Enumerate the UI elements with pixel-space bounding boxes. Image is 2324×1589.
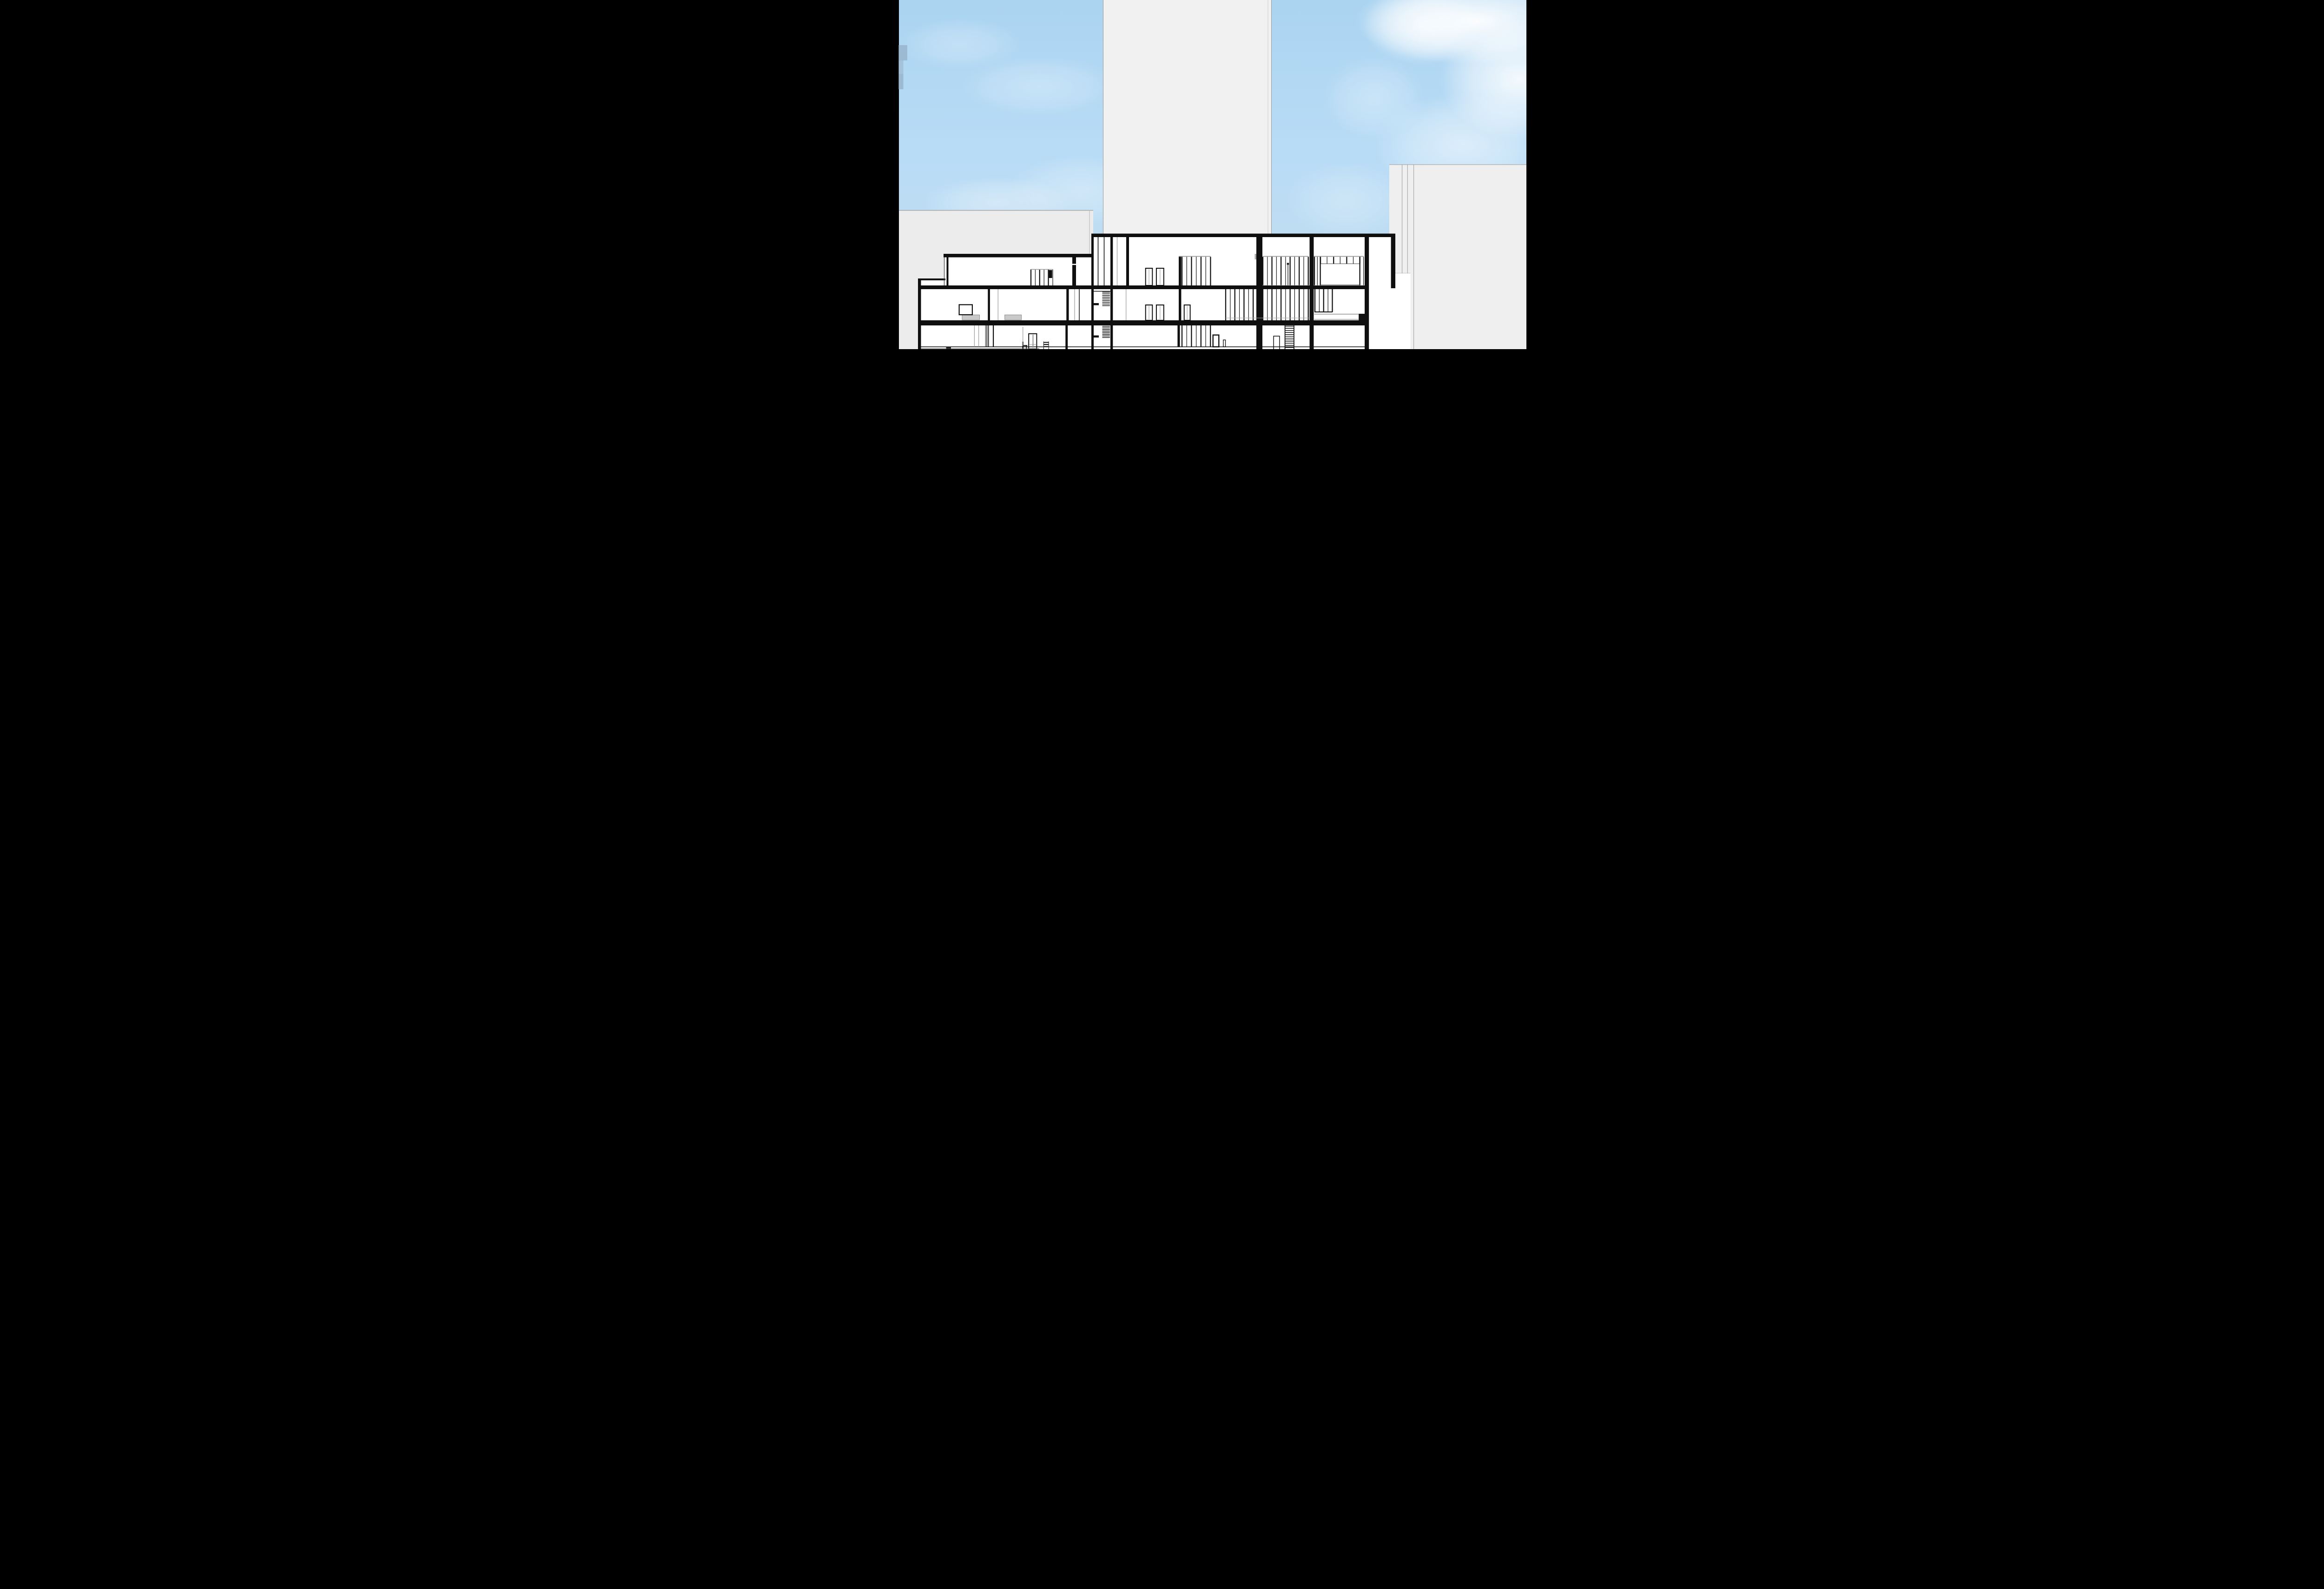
left-facade-line: [947, 258, 949, 286]
architectural-section-scene: [798, 0, 1526, 487]
upper-partition-wall: [1126, 237, 1129, 285]
low-cabinet-a: [962, 315, 980, 320]
cloud: [900, 19, 1021, 70]
mid-floor-slab: [918, 285, 1369, 289]
ground-layer: [798, 349, 1526, 487]
left-annex-interior: [918, 280, 944, 349]
right-parapet-wall: [1391, 234, 1395, 289]
stair-core-wall-left: [1091, 237, 1094, 349]
left-wing-roof-slab: [944, 254, 1091, 258]
background-building-left: [899, 210, 1093, 258]
background-tower: [1103, 0, 1272, 235]
left-ground-partition-a: [988, 325, 989, 347]
drawing-canvas: [798, 0, 1526, 487]
left-exterior-wall: [918, 278, 921, 349]
cloud: [1323, 56, 1425, 139]
sky-edge-mark: [899, 60, 904, 74]
low-cabinet-b: [1005, 315, 1022, 320]
sky-edge-mark: [899, 45, 908, 60]
left-ground-partition-c: [1065, 325, 1068, 349]
core-stair-mid: [1103, 292, 1110, 306]
left-mid-partition-b: [1066, 289, 1069, 320]
left-black-band: [798, 0, 899, 349]
left-wing-end-wall: [1072, 265, 1076, 285]
left-ground-partition-b: [993, 325, 994, 347]
center-partition-mid: [1179, 289, 1181, 320]
high-roof-slab: [1091, 234, 1395, 238]
ground-door-right: [1274, 336, 1280, 350]
right-hall-interior: [1369, 273, 1410, 349]
wall-gray-patch: [1255, 254, 1257, 259]
stair-core-wall-right: [1110, 237, 1113, 349]
large-window-panel: [1320, 264, 1360, 285]
ground-door-center: [1213, 335, 1219, 347]
left-wing-end-wall-top: [1072, 258, 1076, 264]
stair-newel-ground: [1094, 336, 1099, 338]
ground-mass: [798, 349, 1526, 487]
sky-edge-mark: [899, 74, 904, 89]
wall-box-left-wing: [959, 305, 972, 315]
center-right-wall: [1256, 237, 1262, 349]
right-block-wall: [1310, 237, 1314, 349]
left-mid-partition-a: [988, 289, 990, 320]
left-ground-gray-wall: [985, 325, 988, 347]
left-wing-interior: [944, 258, 1091, 350]
lower-floor-slab: [918, 320, 1369, 325]
left-annex-roof: [918, 278, 945, 280]
ground-door-small: [1223, 340, 1226, 347]
upper-black-cabinet: [1049, 270, 1052, 278]
stair-landing-block: [1359, 314, 1365, 322]
center-partition-upper: [1179, 256, 1181, 285]
right-end-wall: [1365, 237, 1369, 349]
stair-newel-mid: [1094, 303, 1099, 305]
cloud: [1286, 163, 1406, 237]
center-partition-ground: [1177, 325, 1180, 347]
